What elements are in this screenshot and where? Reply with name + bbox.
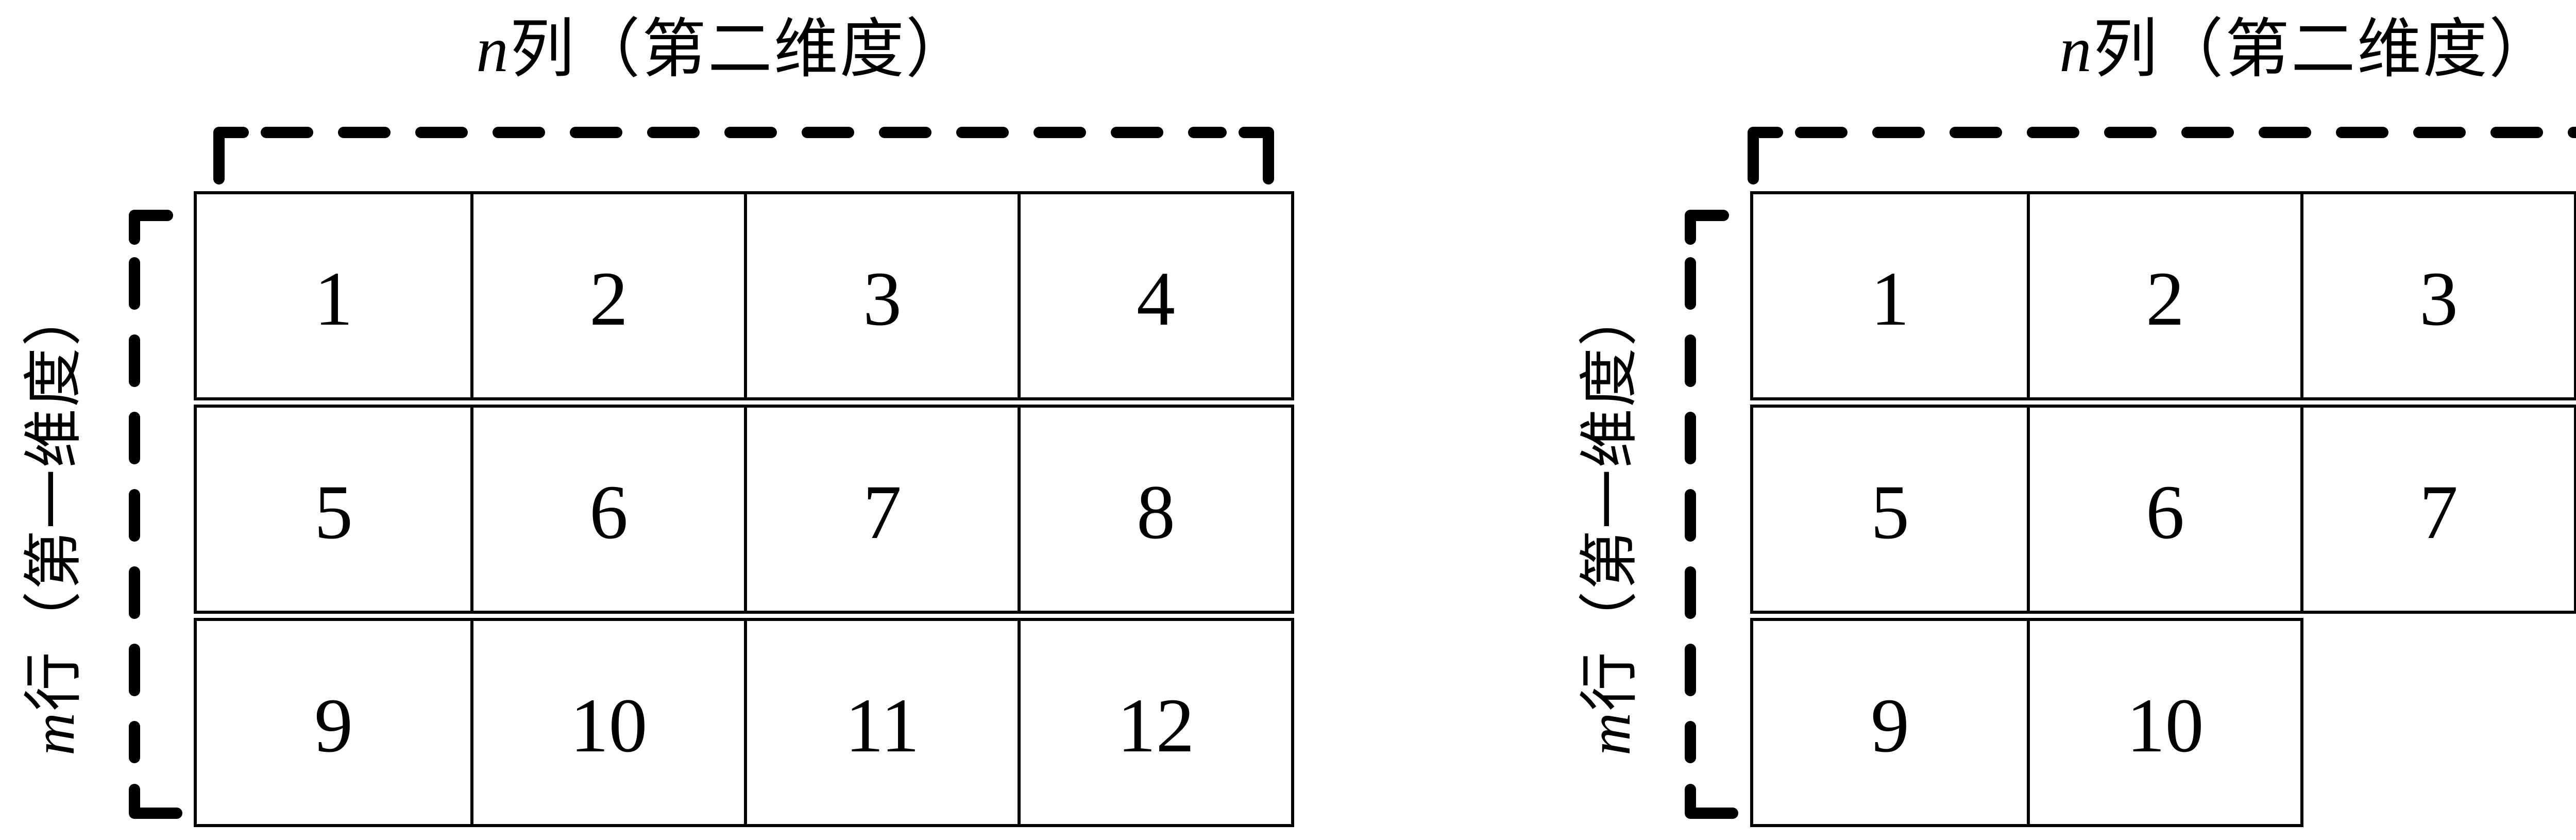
- array-cell: 4: [1018, 194, 1291, 397]
- left-rows-axis-title: m行（第一维度）: [22, 285, 87, 755]
- left-columns-title-text: 列（第二维度）: [510, 14, 972, 86]
- array-cell: 7: [2300, 408, 2574, 611]
- left-rows-bracket-corner-ticks: [134, 215, 177, 813]
- right-rows-variable-m: m: [1577, 711, 1642, 755]
- right-columns-variable-n: n: [2059, 14, 2093, 86]
- left-rows-title-text: 行（第一维度）: [21, 285, 87, 711]
- array-cell: 6: [470, 408, 744, 611]
- array-cell: 10: [470, 621, 744, 824]
- array-cell: 9: [1753, 621, 2027, 824]
- two-dimensional-array-diagram: n列（第二维度） m行（第一维度） 1 2 3 4 5 6 7 8 9 10 1…: [0, 0, 2576, 840]
- array-cell: 6: [2027, 408, 2300, 611]
- array-cell: 8: [2574, 408, 2576, 611]
- array-cell: 10: [2027, 621, 2300, 824]
- array-cell: 5: [1753, 408, 2027, 611]
- array-row-3: 9 10 11 12: [194, 618, 1294, 827]
- right-rows-axis-title: m行（第一维度）: [1578, 285, 1643, 755]
- array-row-2: 5 6 7 8: [194, 405, 1294, 614]
- array-cell: 11: [744, 621, 1018, 824]
- left-columns-variable-n: n: [476, 14, 510, 86]
- array-cell: 2: [470, 194, 744, 397]
- right-rows-bracket-corner-ticks: [1690, 215, 1733, 813]
- array-cell: 8: [1018, 408, 1291, 611]
- array-cell: 9: [197, 621, 470, 824]
- array-cell: 7: [744, 408, 1018, 611]
- right-rows-title-text: 行（第一维度）: [1577, 285, 1642, 711]
- array-cell: 3: [744, 194, 1018, 397]
- right-columns-bracket-corner-ticks: [1753, 132, 2576, 179]
- right-columns-title-text: 列（第二维度）: [2093, 14, 2555, 86]
- left-columns-bracket-corner-ticks: [219, 132, 1268, 179]
- right-columns-axis-title: n列（第二维度）: [2059, 13, 2555, 88]
- jagged-row-1: 1 2 3: [1750, 191, 2576, 400]
- jagged-row-2: 5 6 7 8: [1750, 405, 2576, 614]
- array-cell: 12: [1018, 621, 1291, 824]
- jagged-row-3: 9 10: [1750, 618, 2303, 827]
- array-cell: 5: [197, 408, 470, 611]
- array-cell: 1: [197, 194, 470, 397]
- array-cell: 1: [1753, 194, 2027, 397]
- array-row-1: 1 2 3 4: [194, 191, 1294, 400]
- array-cell: 3: [2300, 194, 2574, 397]
- left-columns-axis-title: n列（第二维度）: [476, 13, 972, 88]
- array-cell: 2: [2027, 194, 2300, 397]
- left-rows-variable-m: m: [21, 711, 87, 755]
